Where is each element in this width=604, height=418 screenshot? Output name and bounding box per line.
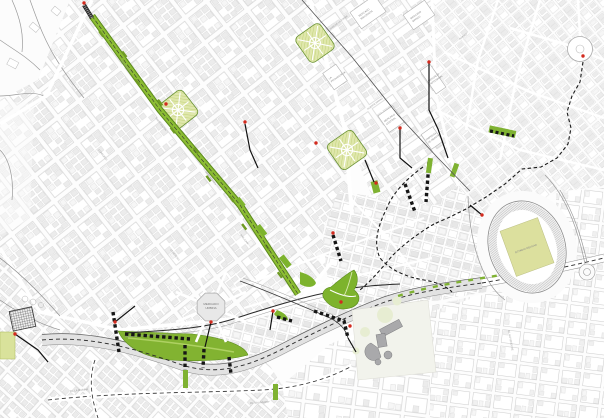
svg-text:URBINA: URBINA (205, 306, 216, 310)
